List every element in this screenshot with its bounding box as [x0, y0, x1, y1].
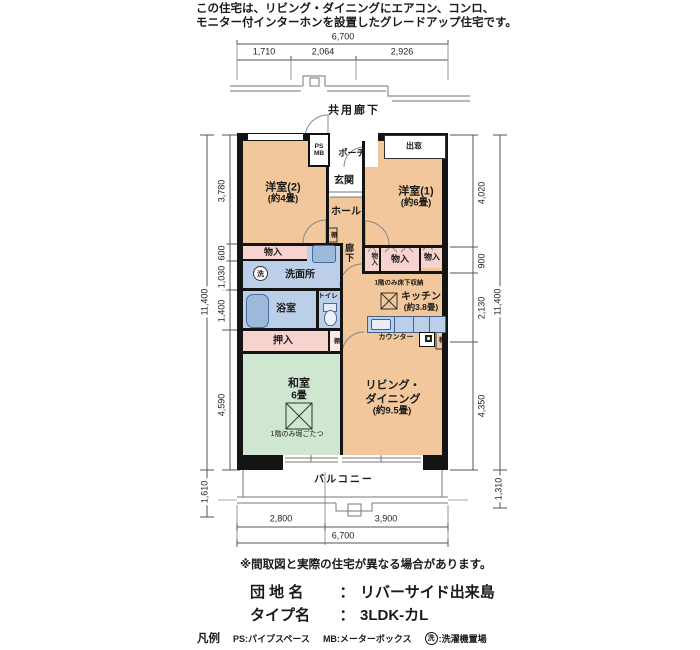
disclaimer: ※間取図と実際の住宅が異なる場合があります。	[240, 556, 492, 572]
kitchen-counter	[367, 316, 446, 333]
dim-top-seg1: 1,710	[251, 48, 278, 57]
western2-name: 洋室(2)	[265, 182, 300, 195]
dim-left-seg1: 3,780	[218, 178, 227, 205]
washer-mark: 洗	[257, 269, 264, 279]
dim-bottom-seg1: 2,800	[268, 515, 295, 524]
counter-divider	[394, 317, 395, 332]
washbasin-icon	[312, 245, 336, 263]
dim-left-seg3: 1,030	[218, 264, 227, 291]
wall-bottom-left-pillar	[237, 455, 283, 470]
entrance-label: 玄関	[334, 175, 354, 187]
living-door-arc	[342, 332, 364, 354]
kitchen-size: (約3.8畳)	[404, 303, 438, 313]
dim-top-seg3: 2,926	[389, 48, 416, 57]
toilet-bowl-icon	[324, 310, 337, 326]
mb-label: MB	[314, 150, 324, 157]
legend-washer-icon: 洗	[425, 632, 438, 645]
estate-name-value: リバーサイド出来島	[360, 581, 495, 602]
wall-bottom-right-pillar	[423, 455, 448, 470]
kitchen-name: キッチン	[401, 291, 441, 303]
type-name-row: タイプ名 ： 3LDK-カL	[250, 604, 428, 625]
dim-left-seg4: 1,400	[218, 298, 227, 325]
legend-ps: PS:パイプスペース	[233, 632, 310, 645]
estate-colon: ：	[334, 581, 360, 602]
shelf-label-oshiire: 棚	[332, 338, 339, 345]
common-corridor-label: 共用廊下	[328, 105, 380, 118]
type-name-label: タイプ名	[250, 604, 334, 625]
wall-oshiire-bottom	[243, 351, 340, 354]
oshiire-label: 押入	[273, 335, 293, 347]
dim-left-balcony: 1,610	[201, 479, 210, 506]
dim-right-seg1: 4,020	[478, 180, 487, 207]
wall-oshiire-top	[243, 328, 340, 331]
western1-name: 洋室(1)	[398, 186, 433, 199]
estate-name-label: 団 地 名	[250, 581, 334, 602]
hall-label: ホール	[331, 206, 361, 218]
legend-row: 凡例 PS:パイプスペース MB:メーターボックス 洗 :洗濯機置場	[197, 630, 487, 646]
wall-closet-div1	[379, 247, 381, 271]
living-label-1: リビング・	[366, 380, 421, 393]
dim-top-seg2: 2,064	[310, 48, 337, 57]
dim-left-seg2: 600	[218, 243, 227, 262]
dim-left-seg5: 4,590	[218, 392, 227, 419]
western2-door-arc	[303, 220, 326, 243]
closet-a-label: 物入	[369, 253, 376, 266]
estate-name-row: 団 地 名 ： リバーサイド出来島	[250, 581, 495, 602]
closet-b-label: 物入	[391, 254, 409, 264]
dim-top-total: 6,700	[330, 33, 357, 42]
western1-size: (約6畳)	[401, 199, 432, 210]
bathtub-icon	[246, 294, 269, 328]
dim-right-seg3: 2,130	[478, 295, 487, 322]
floorplan-page: この住宅は、リビング・ダイニングにエアコン、コンロ、 モニター付インターホンを設…	[0, 0, 700, 650]
washitsu-note: 1階のみ堀ごたつ	[271, 431, 324, 439]
shelf-label-hall: 棚	[329, 232, 336, 239]
western1-door-arc	[365, 221, 389, 245]
counter-divider	[413, 317, 414, 332]
wall-left	[237, 133, 243, 470]
washitsu-size: 6畳	[291, 390, 307, 402]
window-gap-west2	[248, 134, 303, 140]
washer-place-icon: 洗	[253, 266, 268, 281]
porch-label: ポーチ	[338, 148, 365, 158]
dim-bottom-seg2: 3,900	[373, 515, 400, 524]
dim-right-seg4: 4,350	[478, 393, 487, 420]
wall-corridor-right	[340, 243, 343, 455]
wall-closet-bottom	[243, 259, 307, 261]
wall-closetrow-bottom	[362, 271, 444, 274]
type-name-value: 3LDK-カL	[360, 604, 428, 625]
stove-burner	[425, 335, 432, 342]
wall-bath-top	[243, 288, 340, 291]
living-label-2: ダイニング	[366, 394, 421, 407]
underfloor-note: 1階のみ床下収納	[374, 279, 423, 286]
corridor-door-arc	[340, 264, 362, 286]
dim-bottom-total: 6,700	[330, 532, 357, 541]
bath-label: 浴室	[276, 303, 296, 315]
legend-washer-text: :洗濯機置場	[439, 632, 487, 645]
wall-shelf-divider	[328, 330, 330, 353]
legend-washer: 洗 :洗濯機置場	[425, 632, 487, 645]
kitchen-sink-icon	[371, 319, 391, 330]
dim-right-seg2: 900	[478, 251, 487, 270]
plan-lines	[0, 0, 700, 650]
bay-window-label: 出窓	[406, 141, 422, 150]
counter-divider	[429, 317, 430, 332]
closet-c-label: 物入	[424, 252, 440, 261]
dim-right-total: 11,400	[494, 287, 503, 318]
wall-closetrow-top	[365, 245, 444, 248]
living-size: (約9.5畳)	[373, 407, 412, 418]
wall-closet-div2	[419, 247, 421, 271]
legend-mb: MB:メーターボックス	[323, 632, 412, 645]
ps-label: PS	[314, 143, 324, 150]
shelf-label-counter: 棚	[437, 337, 444, 344]
western2-size: (約4畳)	[268, 195, 299, 206]
counter-label: カウンター	[379, 334, 414, 342]
closet-left-label: 物入	[264, 247, 282, 257]
type-colon: ：	[334, 604, 360, 625]
common-corridor-outline	[230, 76, 470, 101]
wall-entrance-right	[362, 141, 365, 273]
corridor-label: 廊下	[344, 243, 354, 263]
dim-right-balcony: 1,310	[495, 476, 504, 503]
washroom-label: 洗面所	[285, 269, 315, 281]
legend-title: 凡例	[197, 630, 220, 646]
washitsu-name: 和室	[288, 378, 310, 391]
toilet-label: トイレ	[318, 292, 338, 299]
stove-icon	[419, 332, 435, 347]
wall-right	[442, 133, 448, 470]
ps-mb-box: PS MB	[308, 133, 330, 167]
porch-opening	[326, 133, 378, 141]
balcony-label: バルコニー	[314, 474, 374, 486]
dim-left-total: 11,400	[201, 287, 210, 318]
